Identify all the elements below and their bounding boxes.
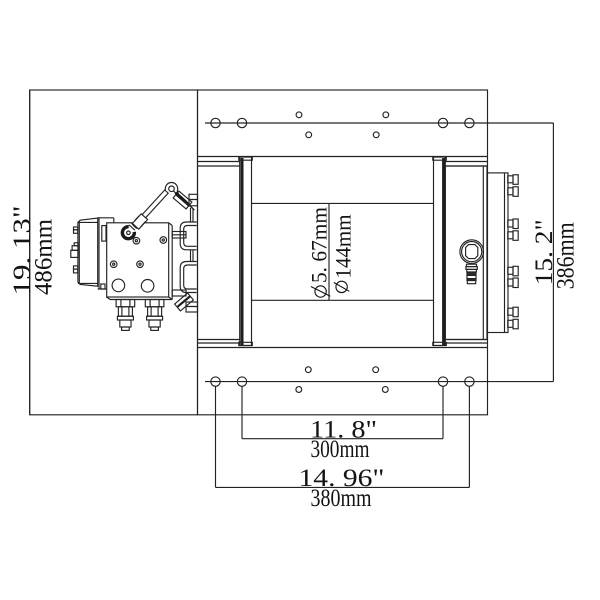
svg-text:5. 67mm: 5. 67mm [307,207,332,283]
svg-text:380mm: 380mm [311,485,372,512]
svg-text:300mm: 300mm [311,436,370,463]
svg-text:386mm: 386mm [551,222,580,289]
svg-text:486mm: 486mm [29,219,58,295]
svg-text:144mm: 144mm [331,214,356,278]
